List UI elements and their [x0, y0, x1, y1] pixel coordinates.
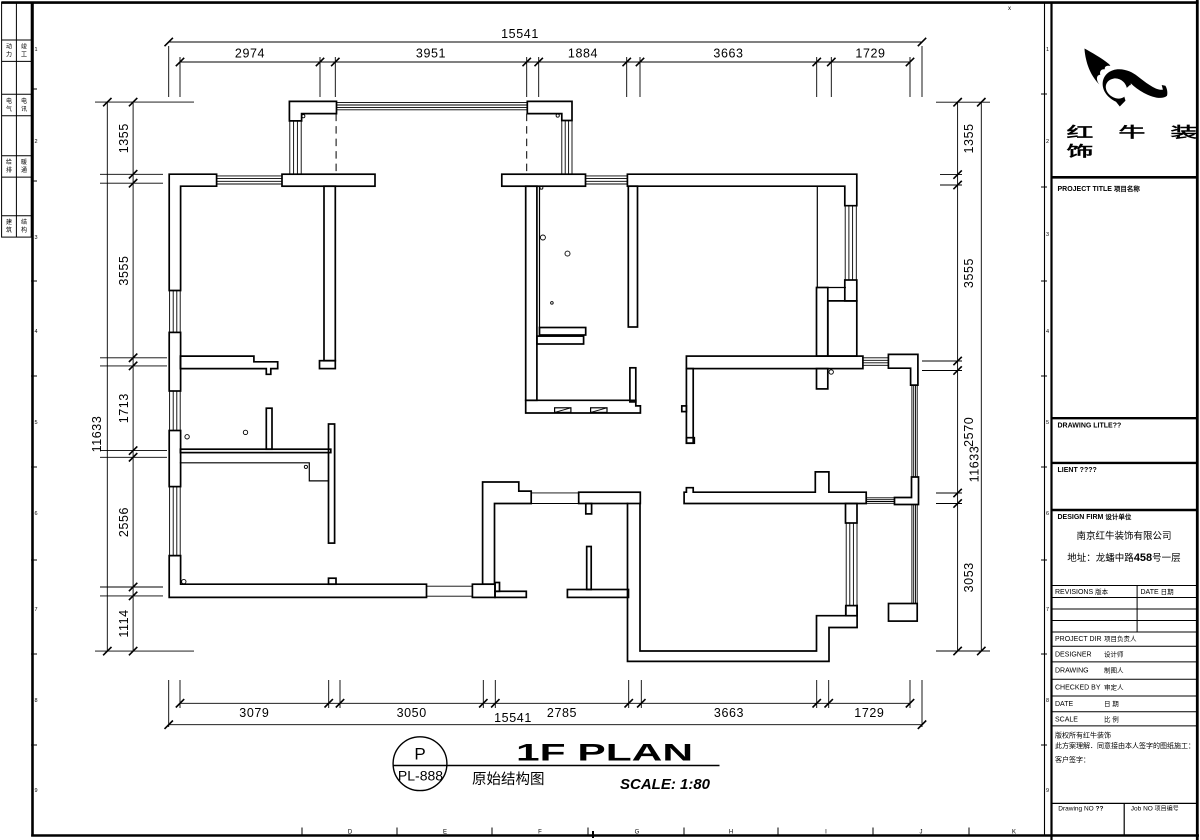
svg-text:1114: 1114	[117, 609, 131, 637]
svg-text:DESIGN FIRM 设计单位: DESIGN FIRM 设计单位	[1058, 512, 1132, 521]
svg-text:Job NO 项目编号: Job NO 项目编号	[1131, 805, 1179, 813]
svg-text:8: 8	[1046, 698, 1049, 704]
svg-text:力: 力	[6, 51, 12, 59]
svg-text:建: 建	[6, 218, 12, 226]
svg-text:电: 电	[21, 97, 27, 105]
svg-text:红: 红	[1067, 124, 1094, 141]
svg-text:3: 3	[1046, 232, 1049, 238]
svg-text:南京红牛装饰有限公司: 南京红牛装饰有限公司	[1076, 530, 1171, 542]
svg-text:竣: 竣	[21, 43, 27, 51]
svg-text:11633: 11633	[90, 416, 104, 453]
svg-text:15541: 15541	[494, 711, 532, 725]
svg-text:1884: 1884	[568, 47, 598, 61]
svg-text:D: D	[348, 830, 353, 836]
svg-text:4: 4	[1046, 329, 1049, 335]
svg-text:REVISIONS 版本: REVISIONS 版本	[1055, 587, 1109, 596]
svg-text:动: 动	[6, 44, 12, 51]
svg-text:7: 7	[35, 607, 38, 613]
svg-text:地址：龙蟠中路458号一层: 地址：龙蟠中路458号一层	[1067, 552, 1180, 564]
svg-text:H: H	[729, 830, 733, 836]
svg-text:9: 9	[1046, 788, 1049, 794]
svg-text:饰: 饰	[1067, 143, 1094, 160]
svg-text:气: 气	[6, 105, 12, 113]
svg-text:DESIGNER设计师: DESIGNER设计师	[1055, 650, 1124, 659]
svg-text:2785: 2785	[547, 706, 577, 720]
svg-text:原始结构图: 原始结构图	[472, 771, 545, 788]
svg-text:讯: 讯	[21, 105, 27, 113]
svg-text:P: P	[414, 745, 425, 764]
svg-text:排: 排	[6, 166, 12, 174]
svg-text:此方案理解．同意接由本人签字的图纸施工：: 此方案理解．同意接由本人签字的图纸施工：	[1055, 741, 1195, 750]
svg-text:3079: 3079	[239, 706, 269, 720]
svg-text:5: 5	[35, 420, 38, 426]
svg-text:构: 构	[21, 226, 27, 234]
svg-text:PROJECT DIR项目负责人: PROJECT DIR项目负责人	[1055, 634, 1137, 643]
svg-text:6: 6	[1046, 511, 1049, 517]
svg-text:牛: 牛	[1119, 124, 1146, 141]
svg-text:筑: 筑	[6, 226, 12, 234]
svg-text:x: x	[1008, 6, 1011, 12]
svg-text:1: 1	[1046, 47, 1049, 53]
svg-text:4: 4	[35, 329, 38, 335]
svg-text:装: 装	[1171, 124, 1198, 141]
svg-text:通: 通	[21, 166, 27, 174]
svg-text:15541: 15541	[501, 27, 539, 41]
svg-text:3: 3	[35, 235, 38, 241]
svg-text:工: 工	[21, 52, 27, 59]
svg-text:5: 5	[1046, 420, 1049, 426]
svg-text:Drawing NO ??: Drawing NO ??	[1058, 806, 1103, 813]
svg-text:1355: 1355	[962, 123, 976, 153]
svg-text:暖: 暖	[21, 158, 27, 166]
svg-text:电: 电	[6, 97, 12, 105]
svg-text:K: K	[1012, 830, 1016, 836]
svg-text:1729: 1729	[854, 706, 884, 720]
svg-text:1: 1	[35, 47, 38, 53]
svg-text:3053: 3053	[962, 562, 976, 592]
svg-text:1729: 1729	[855, 47, 885, 61]
svg-text:3951: 3951	[416, 47, 446, 61]
svg-text:PROJECT TITLE 项目名称: PROJECT TITLE 项目名称	[1058, 184, 1141, 193]
svg-text:版权所有红牛装饰: 版权所有红牛装饰	[1055, 731, 1111, 740]
svg-text:2: 2	[35, 139, 38, 145]
svg-text:G: G	[635, 830, 640, 836]
svg-text:F: F	[538, 830, 542, 836]
svg-text:9: 9	[35, 788, 38, 794]
svg-text:PL-888: PL-888	[398, 768, 443, 784]
svg-text:3663: 3663	[714, 706, 744, 720]
svg-text:2: 2	[1046, 139, 1049, 145]
svg-text:11633: 11633	[968, 446, 982, 483]
svg-text:8: 8	[35, 698, 38, 704]
svg-text:2570: 2570	[962, 417, 976, 447]
svg-text:1355: 1355	[117, 123, 131, 153]
svg-text:给: 给	[6, 158, 12, 166]
svg-text:6: 6	[35, 511, 38, 517]
svg-text:1F PLAN: 1F PLAN	[516, 740, 693, 767]
svg-text:3555: 3555	[962, 258, 976, 288]
svg-text:J: J	[920, 830, 923, 836]
svg-text:DATE 日期: DATE 日期	[1141, 588, 1175, 596]
svg-text:SCALE: 1:80: SCALE: 1:80	[620, 776, 711, 793]
svg-text:3050: 3050	[397, 706, 427, 720]
svg-text:LIENT ????: LIENT ????	[1058, 467, 1097, 474]
svg-text:E: E	[443, 830, 447, 836]
svg-text:DRAWING LITLE??: DRAWING LITLE??	[1058, 423, 1122, 430]
svg-text:2974: 2974	[235, 47, 265, 61]
svg-text:7: 7	[1046, 607, 1049, 613]
svg-text:3663: 3663	[713, 47, 743, 61]
svg-text:2556: 2556	[117, 507, 131, 537]
svg-text:1713: 1713	[117, 393, 131, 423]
svg-text:3555: 3555	[117, 255, 131, 285]
svg-text:结: 结	[21, 218, 27, 226]
svg-text:客户签字：: 客户签字：	[1055, 755, 1090, 764]
svg-text:CHECKED BY审定人: CHECKED BY审定人	[1055, 683, 1124, 692]
